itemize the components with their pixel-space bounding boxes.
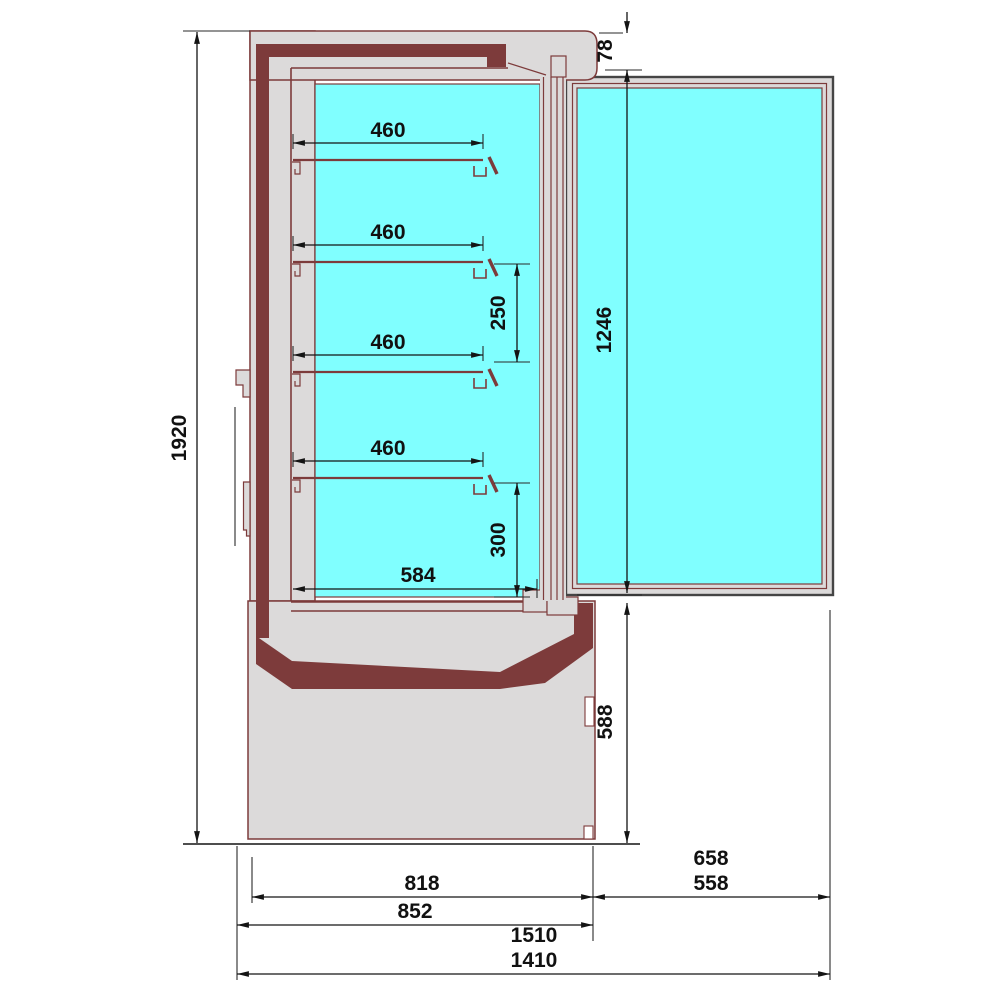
dim-shelf-depth-4: 460 xyxy=(370,437,405,460)
wall-bracket-upper xyxy=(236,370,250,397)
dim-bottom-clearance: 300 xyxy=(487,522,510,557)
front-frame-column xyxy=(540,56,566,601)
dim-shelf-depth-1: 460 xyxy=(370,119,405,142)
cabinet-section-drawing: 1920 460 460 460 460 xyxy=(0,0,1000,1000)
base-side-notch xyxy=(585,697,594,726)
wall-bracket-lower xyxy=(244,482,251,536)
dim-cabinet-depth: 818 xyxy=(404,872,439,895)
dim-top-offset: 78 xyxy=(594,39,617,63)
dim-overall-height: 1920 xyxy=(168,415,191,462)
dim-overall-depth: 1410 xyxy=(511,949,558,972)
dim-door-projection-outer: 658 xyxy=(693,847,728,870)
insulation-top-band xyxy=(256,44,502,57)
dim-overall-depth-outer: 1510 xyxy=(511,924,558,947)
dim-door-projection: 558 xyxy=(693,872,728,895)
insulation-back-band xyxy=(256,44,269,638)
dim-shelf-depth-3: 460 xyxy=(370,331,405,354)
dim-cabinet-depth-overall: 852 xyxy=(397,900,432,923)
dim-shelf-spacing: 250 xyxy=(487,295,510,330)
dim-shelf-depth-2: 460 xyxy=(370,221,405,244)
insulation-top-step xyxy=(487,44,506,67)
base-body xyxy=(248,601,595,839)
base-foot-notch xyxy=(584,826,593,839)
dim-base-height: 588 xyxy=(594,704,617,739)
dim-well-depth: 584 xyxy=(400,564,435,587)
technical-drawing-page: 1920 460 460 460 460 xyxy=(0,0,1000,1000)
cabinet-structure xyxy=(235,31,833,839)
dim-door-height: 1246 xyxy=(593,307,616,354)
hinge-block xyxy=(551,56,566,77)
